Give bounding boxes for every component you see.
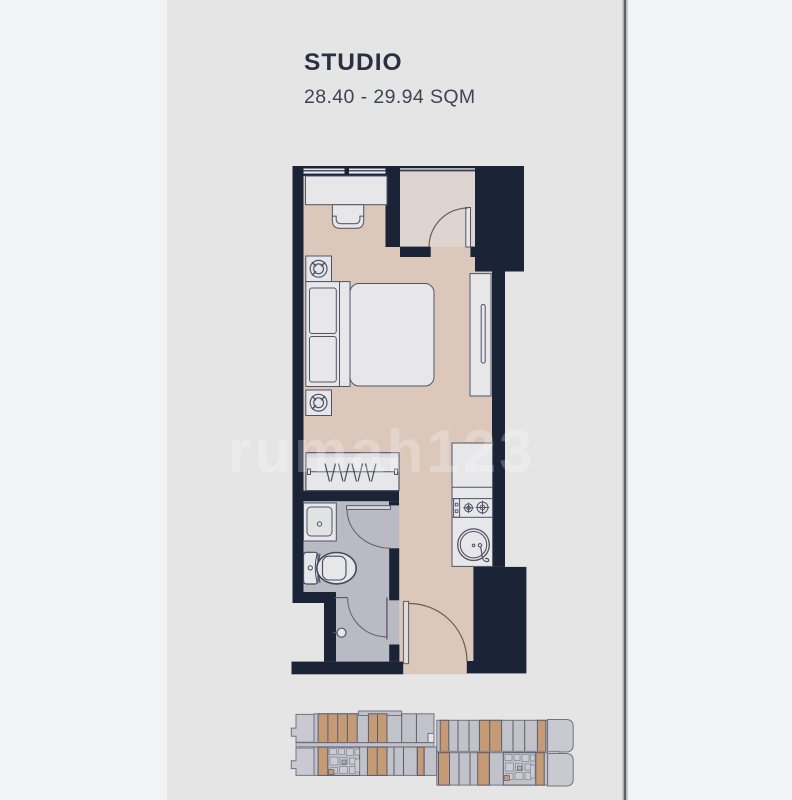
svg-text:STUDIO: STUDIO	[304, 49, 403, 76]
svg-text:rumah123: rumah123	[228, 418, 535, 485]
svg-text:28.40 - 29.94 SQM: 28.40 - 29.94 SQM	[304, 86, 476, 108]
